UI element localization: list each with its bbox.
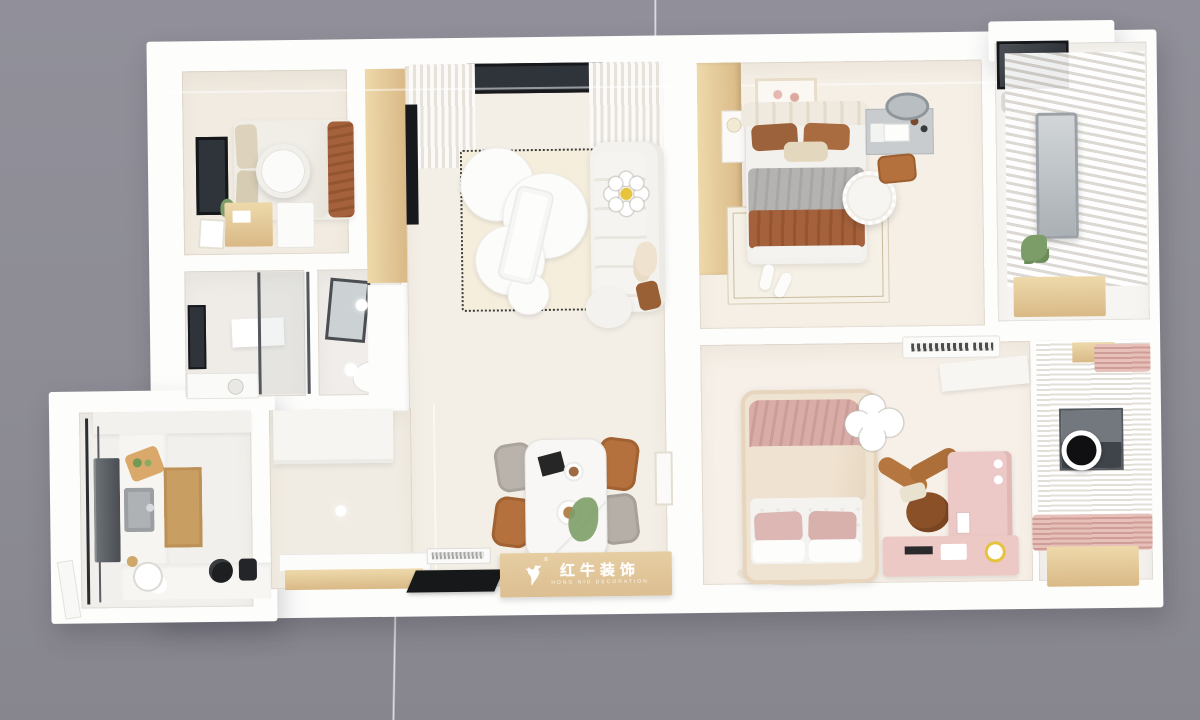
cosmetic-jar [921,125,928,132]
kitchen-upper-cabinets [93,411,251,435]
bowl-contents [569,467,579,477]
registered-mark: ® [544,557,548,563]
dining-wall-frame [654,451,673,505]
bathroom-vanity [186,372,258,399]
shoe-bench-base [285,568,423,590]
bedroom2-desk [224,202,273,247]
kettle [209,559,233,583]
tufted-headboard [741,101,869,127]
ac-unit [902,335,1000,358]
placemat-photo [537,451,565,476]
daisy-center [620,188,632,200]
plush-pillow [635,242,657,276]
vegetables [131,457,143,469]
open-book [871,123,910,141]
tv-cabinet-white [367,285,409,411]
media-sideboard: ® 红牛装饰 HONG NIU DECORATION [500,551,673,597]
render-canvas: ® 红牛装饰 HONG NIU DECORATION [0,0,1200,720]
bay-curtain-pink-top [1094,344,1150,373]
bedside-lamp [726,118,741,133]
brown-throw-blanket [327,121,354,217]
kitchen-sink [124,488,155,532]
brand-name-cn: 红牛装饰 [560,563,640,579]
jar [127,556,138,567]
hall-upper-cabinet [273,409,394,464]
kitchen-wood-door [164,467,203,547]
flower-lamp-center [862,412,886,436]
vent-grille [432,552,484,560]
kids-dresser-pink [883,535,1019,577]
cream-blanket [745,445,866,502]
beige-pillow [784,141,828,162]
plush-giraffe-toy [874,458,959,537]
headboard-pillow [234,124,259,169]
full-length-mirror [1035,112,1079,239]
tape-roll [985,541,1006,562]
toaster [239,558,257,580]
dining-table [524,438,607,561]
pink-pillow [808,511,857,542]
foot-bench-throw [751,245,863,258]
balcony-bench [1013,276,1105,317]
bathroom-window [188,305,207,369]
ac-grille [973,342,993,350]
daisy-pillow [604,172,649,217]
watermark: ® 红牛装饰 HONG NIU DECORATION [500,551,673,597]
tv-panel [406,569,504,592]
toy-blocks [905,546,933,554]
brand-name-en: HONG NIU DECORATION [551,580,648,586]
tv-cabinet-wood [365,69,408,283]
kids-desk-pink [948,451,1013,540]
ac-grille [911,343,969,352]
bull-logo-icon [523,563,545,587]
bay-bench [1047,546,1139,587]
desk-knob [994,459,1003,468]
wc-wall-light [356,299,368,311]
faucet [146,504,154,512]
shower-glass-panel [257,272,310,395]
desk-knob [994,475,1003,484]
bedroom2-side-table [276,202,315,248]
white-pillow [753,540,805,563]
apartment-model: ® 红牛装饰 HONG NIU DECORATION [0,0,1200,720]
white-pillow [809,539,861,562]
desk-switch-plate [956,512,970,534]
vanity-stool [877,153,918,185]
fridge [94,458,121,562]
sink-basin [228,379,244,395]
pink-pillow [754,511,803,543]
hall-ceiling-light [335,505,346,516]
dresser-drawer [941,544,967,560]
flower-ceiling-lamp [845,395,904,454]
paper-sheet [233,211,251,223]
bedroom2-wall-frame [198,218,226,249]
wall-tv [405,104,418,224]
toilet-light-ball [344,363,357,376]
wall-ac-vent [427,548,491,565]
